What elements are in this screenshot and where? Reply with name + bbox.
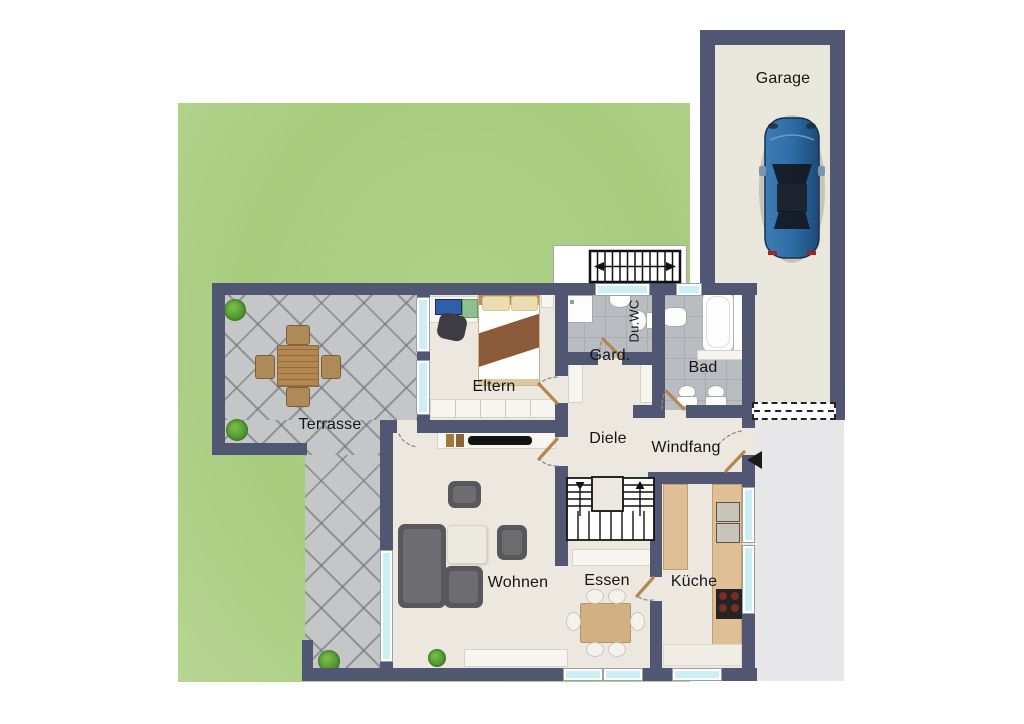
wall-kueche-left-b [650,601,662,681]
label-diele: Diele [589,430,626,448]
potted-plant [428,649,446,667]
coffee-table [447,525,487,564]
dining-table [580,603,631,643]
window-essen-1 [563,668,603,681]
armchair-cushion [502,530,522,555]
stove-burner [731,592,739,600]
armchair [497,525,527,560]
terrace-table [277,345,319,387]
driveway [748,405,844,681]
label-kueche: Küche [671,573,717,591]
desk-pad [462,299,478,318]
window-essen-2 [603,668,643,681]
label-garage: Garage [756,70,811,88]
bed-pillow [511,296,538,311]
wall-bad-bottom-a [652,405,662,418]
dining-chair [586,589,604,604]
double-bed [478,292,540,386]
shower-drain [570,300,574,304]
kitchen-tall-cabinet [663,484,688,570]
stove-burner [719,604,727,612]
label-bad: Bad [688,359,717,377]
kitchen-sink [716,502,740,522]
sofa-l-horizontal [444,566,483,608]
wall-garage-right [830,30,845,420]
terrace-tiles-strip [305,455,380,678]
garage-floor-lower [755,290,832,405]
exterior-stairs-landing [553,245,687,285]
window-wohnen-left [380,550,393,662]
terrace-chair [255,355,275,379]
label-wohnen: Wohnen [488,574,549,592]
label-duwc: Du.WC [627,300,642,343]
sofa-cushions [403,529,441,603]
window-kueche-bottom [672,668,722,681]
wall-kueche-left-a [650,472,662,577]
tv-screen [468,436,532,445]
speaker [456,434,464,447]
terrace-plant [224,299,246,321]
dining-chair [608,642,626,657]
gard-closet [568,362,583,403]
wall-mid-horizontal-b [419,420,568,433]
window-bad [676,283,702,296]
wall-garage-top [700,30,845,45]
wall-right-lower [742,612,755,681]
window-eltern-1 [416,297,430,352]
window-kueche-right-2 [742,545,755,614]
bed-pillow [482,296,510,311]
speaker [446,434,454,447]
stove-burner [719,592,727,600]
kitchen-sink [716,523,740,543]
garage-door [752,402,836,420]
dining-chair [586,642,604,657]
dining-chair [608,589,626,604]
sideboard [464,649,568,667]
wardrobe [430,399,556,418]
garage-door-line [754,410,834,412]
sofa-l-vertical [398,524,446,608]
terrace-plant [226,419,248,441]
stair-sideboard [572,549,655,566]
terrace-chair [286,325,310,345]
bed-blanket [478,310,540,369]
entry-door-opening [742,428,755,455]
bad-sink [663,307,687,327]
armchair-cushion [453,486,476,503]
label-windfang: Windfang [651,439,720,457]
wall-mid-horizontal-a [380,420,397,433]
wall-terrace-left [212,283,225,455]
window-duwc [595,283,650,296]
terrace-chair [286,387,310,407]
floor-plan: Garage Terrasse Eltern Du.WC Gard. Bad D… [0,0,1024,724]
label-gard: Gard. [589,347,630,365]
bathtub-inner [706,296,730,348]
sofa-cushions [449,571,478,603]
terrace-chair [321,355,341,379]
wall-central-3 [555,466,568,566]
label-terrasse: Terrasse [299,416,362,434]
kitchen-counter-bottom [663,644,742,666]
label-eltern: Eltern [473,378,516,396]
wall-terrace-bottom-left [212,443,307,455]
armchair [448,481,481,508]
window-eltern-2 [416,360,430,415]
dining-chair [630,612,645,631]
wall-bad-left [652,283,665,418]
wall-kueche-top [648,472,755,484]
label-essen: Essen [584,572,629,590]
dining-chair [566,612,581,631]
wall-garage-left [700,30,715,285]
wall-central-2 [555,403,568,437]
window-kueche-right-1 [742,487,755,543]
wall-gard-stub [633,405,652,418]
stove-burner [731,604,739,612]
